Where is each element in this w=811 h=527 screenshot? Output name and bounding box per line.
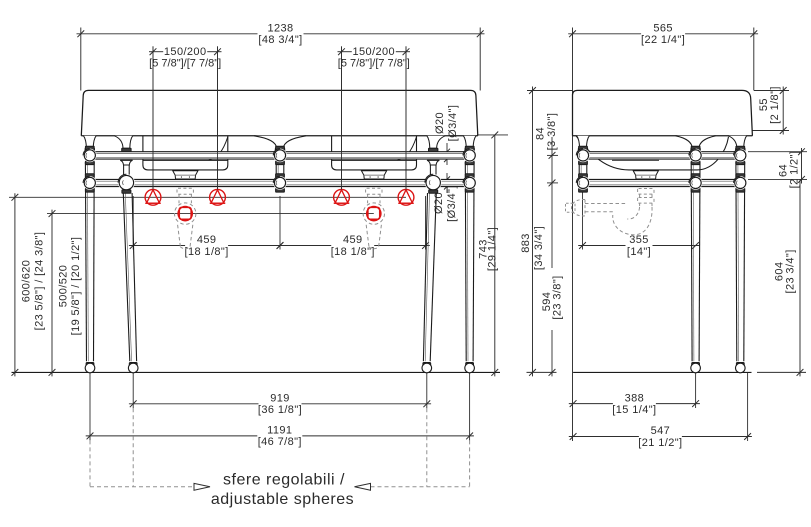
svg-text:459: 459 (197, 234, 217, 246)
svg-text:[34 3/4"]: [34 3/4"] (533, 226, 545, 270)
svg-text:[23 5/8"] / [24 3/8"]: [23 5/8"] / [24 3/8"] (34, 232, 46, 331)
svg-text:919: 919 (270, 393, 290, 405)
svg-text:sfere regolabili /: sfere regolabili / (223, 472, 345, 489)
svg-text:459: 459 (343, 234, 363, 246)
svg-text:64: 64 (778, 164, 790, 177)
svg-text:565: 565 (653, 23, 673, 35)
svg-text:[19 5/8"] / [20 1/2"]: [19 5/8"] / [20 1/2"] (70, 237, 82, 336)
svg-text:883: 883 (520, 233, 532, 253)
svg-text:Ø20: Ø20 (434, 112, 446, 134)
svg-text:[18 1/8"]: [18 1/8"] (184, 246, 228, 258)
svg-text:[29 1/4"]: [29 1/4"] (487, 227, 499, 271)
svg-text:[15 1/4"]: [15 1/4"] (612, 404, 656, 416)
svg-text:[2 1/8"]: [2 1/8"] (769, 86, 781, 124)
svg-text:[2 1/2"]: [2 1/2"] (789, 151, 801, 189)
svg-text:[46 7/8"]: [46 7/8"] (258, 436, 302, 448)
svg-text:[23 3/4"]: [23 3/4"] (784, 249, 796, 293)
svg-text:Ø20: Ø20 (433, 192, 445, 214)
svg-text:1191: 1191 (267, 425, 292, 437)
svg-text:1238: 1238 (267, 23, 293, 35)
svg-text:adjustable spheres: adjustable spheres (211, 491, 354, 508)
svg-text:[21 1/2"]: [21 1/2"] (638, 437, 682, 449)
svg-text:150/200: 150/200 (164, 46, 207, 58)
svg-text:[48 3/4"]: [48 3/4"] (258, 34, 302, 46)
svg-text:500/520: 500/520 (58, 265, 70, 308)
svg-text:55: 55 (758, 98, 770, 111)
svg-text:[22 1/4"]: [22 1/4"] (641, 34, 685, 46)
svg-text:[5 7/8"]/[7 7/8"]: [5 7/8"]/[7 7/8"] (338, 58, 410, 70)
svg-text:[18 1/8"]: [18 1/8"] (331, 246, 375, 258)
svg-text:150/200: 150/200 (353, 46, 396, 58)
svg-text:[5 7/8"]/[7 7/8"]: [5 7/8"]/[7 7/8"] (149, 58, 221, 70)
svg-text:355: 355 (629, 234, 649, 246)
svg-text:[36 1/8"]: [36 1/8"] (258, 404, 302, 416)
svg-text:[14"]: [14"] (627, 246, 651, 258)
svg-text:[23 3/8"]: [23 3/8"] (552, 275, 564, 319)
svg-text:388: 388 (625, 392, 645, 404)
svg-text:[3 3/8"]: [3 3/8"] (546, 113, 558, 151)
svg-text:600/620: 600/620 (21, 260, 33, 303)
svg-text:84: 84 (535, 127, 547, 140)
svg-text:[Ø3/4"]: [Ø3/4"] (446, 185, 458, 222)
svg-text:547: 547 (651, 425, 671, 437)
